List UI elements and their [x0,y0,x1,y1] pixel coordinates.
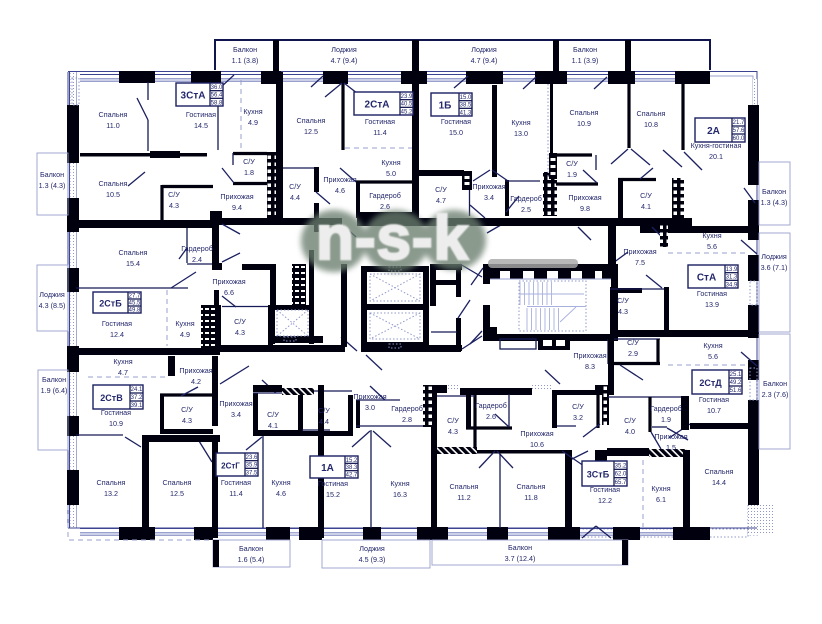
svg-text:4.7 (9.4): 4.7 (9.4) [331,56,358,65]
svg-text:С/У: С/У [617,296,629,305]
svg-text:5.6: 5.6 [708,352,718,361]
svg-text:7.5: 7.5 [635,258,645,267]
svg-text:Лоджия: Лоджия [471,45,497,54]
svg-text:n-s-k: n-s-k [316,204,469,273]
svg-text:1.3 (4.3): 1.3 (4.3) [39,181,66,190]
svg-text:2СтБ: 2СтБ [99,299,122,309]
svg-text:Кухня: Кухня [271,478,290,487]
svg-text:Спальня: Спальня [517,482,546,491]
svg-text:Гостиная: Гостиная [221,478,251,487]
svg-text:5.0: 5.0 [386,169,396,178]
svg-text:49.2: 49.2 [730,380,742,386]
svg-text:15.4: 15.4 [126,259,140,268]
svg-text:10.7: 10.7 [707,406,721,415]
svg-text:4.4: 4.4 [290,193,300,202]
svg-text:1.9: 1.9 [567,170,577,179]
svg-text:27.7: 27.7 [129,294,141,300]
svg-text:2.4: 2.4 [192,255,202,264]
svg-text:Гостиная: Гостиная [365,117,395,126]
svg-text:Гостиная: Гостиная [441,117,471,126]
svg-text:Прихожая: Прихожая [179,366,212,375]
svg-text:Прихожая: Прихожая [654,432,687,441]
svg-text:Спальня: Спальня [97,478,126,487]
svg-text:2СтВ: 2СтВ [100,393,123,403]
svg-text:2А: 2А [707,126,720,137]
svg-text:Спальня: Спальня [450,482,479,491]
svg-text:38.3: 38.3 [346,465,358,471]
svg-text:3.0: 3.0 [365,403,375,412]
svg-text:3.4: 3.4 [484,193,494,202]
svg-text:Кухня: Кухня [511,118,530,127]
svg-text:Гостиная: Гостиная [699,395,729,404]
svg-text:62.0: 62.0 [615,472,627,478]
svg-text:31.3: 31.3 [726,275,738,281]
svg-text:4.3: 4.3 [169,201,179,210]
svg-text:Прихожая: Прихожая [472,182,505,191]
svg-text:11.8: 11.8 [524,493,537,502]
svg-text:13.9: 13.9 [705,300,719,309]
svg-text:3.2: 3.2 [573,413,583,422]
svg-text:2СтГ: 2СтГ [221,462,240,471]
svg-text:Лоджия: Лоджия [39,290,65,299]
svg-text:Прихожая: Прихожая [220,192,253,201]
svg-text:Гостиная: Гостиная [102,319,132,328]
svg-text:45.5: 45.5 [129,301,141,307]
svg-text:Кухня: Кухня [113,357,132,366]
svg-text:Прихожая: Прихожая [573,351,606,360]
svg-text:2СтД: 2СтД [699,378,722,388]
svg-text:4.0: 4.0 [625,427,635,436]
svg-text:2.8: 2.8 [402,415,412,424]
svg-text:6.6: 6.6 [224,288,234,297]
svg-text:Прихожая: Прихожая [568,193,601,202]
svg-text:1.1 (3.9): 1.1 (3.9) [572,56,599,65]
svg-text:21.7: 21.7 [733,120,745,126]
svg-text:15.0: 15.0 [449,128,463,137]
svg-text:10.5: 10.5 [106,190,120,199]
svg-text:39.1: 39.1 [131,403,143,409]
svg-text:34.9: 34.9 [726,282,738,288]
svg-text:11.2: 11.2 [457,493,470,502]
svg-text:Кухня: Кухня [702,231,721,240]
svg-text:15.0: 15.0 [460,95,472,101]
svg-text:4.3: 4.3 [182,416,192,425]
svg-text:С/У: С/У [168,190,180,199]
svg-text:4.6: 4.6 [335,186,345,195]
svg-text:45.2: 45.2 [401,109,413,115]
svg-text:1.5: 1.5 [666,443,676,452]
svg-text:23.9: 23.9 [401,94,413,100]
svg-text:С/У: С/У [243,157,255,166]
svg-text:4.6: 4.6 [276,489,286,498]
svg-text:16.3: 16.3 [393,490,407,499]
svg-text:4.3: 4.3 [618,307,628,316]
svg-text:Балкон: Балкон [42,375,66,384]
svg-text:3.7 (12.4): 3.7 (12.4) [505,554,536,563]
svg-text:С/У: С/У [640,191,652,200]
svg-text:12.4: 12.4 [110,330,124,339]
svg-text:4.9: 4.9 [248,118,258,127]
svg-text:Лоджия: Лоджия [761,252,787,261]
svg-text:Гостиная: Гостиная [186,110,216,119]
svg-text:4.3: 4.3 [235,328,245,337]
svg-text:24.1: 24.1 [131,387,143,393]
svg-text:С/У: С/У [566,159,578,168]
svg-text:1.9: 1.9 [661,415,671,424]
svg-text:56.4: 56.4 [211,93,223,99]
svg-text:38.5: 38.5 [460,103,472,109]
svg-text:Спальня: Спальня [99,110,128,119]
svg-text:Балкон: Балкон [573,45,597,54]
svg-text:Балкон: Балкон [233,45,257,54]
svg-text:10.6: 10.6 [530,440,544,449]
svg-text:4.5 (9.3): 4.5 (9.3) [359,555,386,564]
svg-text:40.5: 40.5 [401,102,413,108]
svg-text:1.1 (3.8): 1.1 (3.8) [232,56,259,65]
svg-text:3СтА: 3СтА [181,91,206,102]
svg-text:12.2: 12.2 [598,496,612,505]
svg-text:Кухня: Кухня [390,479,409,488]
svg-text:С/У: С/У [627,338,639,347]
svg-text:Лоджия: Лоджия [359,544,385,553]
svg-text:Балкон: Балкон [762,187,786,196]
svg-text:Гардероб: Гардероб [510,194,542,203]
svg-text:11.4: 11.4 [373,128,386,137]
svg-text:Кухня: Кухня [175,319,194,328]
svg-text:5.6: 5.6 [707,242,717,251]
svg-text:37.5: 37.5 [246,470,258,476]
svg-text:1А: 1А [321,463,334,474]
svg-text:11.0: 11.0 [106,121,119,130]
svg-text:С/У: С/У [267,410,279,419]
svg-text:35.2: 35.2 [615,463,627,469]
svg-text:Спальня: Спальня [99,179,128,188]
svg-text:10.9: 10.9 [109,419,123,428]
svg-text:6.1: 6.1 [656,495,666,504]
svg-text:12.5: 12.5 [304,127,318,136]
svg-text:13.2: 13.2 [104,489,118,498]
svg-text:Кухня: Кухня [703,341,722,350]
svg-text:4.9: 4.9 [180,330,190,339]
svg-text:10.9: 10.9 [577,119,591,128]
svg-text:С/У: С/У [572,402,584,411]
svg-text:С/У: С/У [181,405,193,414]
svg-text:Лоджия: Лоджия [331,45,357,54]
svg-text:Гардероб: Гардероб [369,191,401,200]
svg-text:Гостиная: Гостиная [697,289,727,298]
svg-text:2.9: 2.9 [628,349,638,358]
svg-text:Кухня: Кухня [243,107,262,116]
svg-text:1.9 (6.4): 1.9 (6.4) [41,386,68,395]
svg-text:Гардероб: Гардероб [650,404,682,413]
svg-text:Балкон: Балкон [508,543,532,552]
svg-text:1.8: 1.8 [244,168,254,177]
svg-text:Прихожая: Прихожая [623,247,656,256]
svg-text:41.3: 41.3 [460,110,472,116]
svg-text:С/У: С/У [234,317,246,326]
svg-text:Спальня: Спальня [637,109,666,118]
svg-text:57.6: 57.6 [733,128,745,134]
svg-text:Прихожая: Прихожая [219,399,252,408]
svg-text:Прихожая: Прихожая [353,392,386,401]
svg-text:4.1: 4.1 [641,202,651,211]
svg-text:4.1: 4.1 [268,421,278,430]
svg-text:Спальня: Спальня [297,116,326,125]
svg-text:Прихожая: Прихожая [520,429,553,438]
svg-text:СтА: СтА [697,273,716,284]
svg-text:11.4: 11.4 [229,489,242,498]
svg-text:4.3: 4.3 [448,427,458,436]
svg-text:2СтА: 2СтА [365,100,390,111]
svg-text:4.7 (9.4): 4.7 (9.4) [471,56,498,65]
svg-text:2.6: 2.6 [486,412,496,421]
svg-text:С/У: С/У [447,416,459,425]
svg-text:42.7: 42.7 [346,473,358,479]
svg-text:35.9: 35.9 [246,463,258,469]
svg-text:1Б: 1Б [439,101,452,112]
svg-text:4.7: 4.7 [118,368,128,377]
svg-text:3.6 (7.1): 3.6 (7.1) [761,263,788,272]
svg-text:9.4: 9.4 [232,203,242,212]
svg-text:Кухня: Кухня [651,484,670,493]
svg-text:1.3 (4.3): 1.3 (4.3) [761,198,788,207]
svg-text:36.0: 36.0 [211,85,223,91]
svg-text:25.1: 25.1 [730,372,742,378]
svg-text:Гостиная: Гостиная [318,479,348,488]
svg-text:4.2: 4.2 [191,377,201,386]
svg-text:Балкон: Балкон [40,170,64,179]
svg-text:Кухня: Кухня [381,158,400,167]
svg-text:15.2: 15.2 [346,458,358,464]
svg-text:1.6 (5.4): 1.6 (5.4) [238,555,265,564]
svg-text:3.4: 3.4 [231,410,241,419]
svg-text:Балкон: Балкон [239,544,263,553]
svg-text:Прихожая: Прихожая [212,277,245,286]
svg-text:13.9: 13.9 [726,267,738,273]
svg-text:Гардероб: Гардероб [475,401,507,410]
svg-text:Гостиная: Гостиная [101,408,131,417]
svg-text:Спальня: Спальня [163,478,192,487]
svg-text:8.3: 8.3 [585,362,595,371]
svg-text:49.8: 49.8 [129,308,141,314]
svg-text:2.5: 2.5 [521,205,531,214]
svg-text:23.6: 23.6 [246,455,258,461]
svg-text:Спальня: Спальня [570,108,599,117]
svg-text:12.5: 12.5 [170,489,184,498]
svg-text:Балкон: Балкон [763,379,787,388]
svg-text:Гостиная: Гостиная [590,485,620,494]
svg-text:С/У: С/У [435,185,447,194]
svg-text:Гардероб: Гардероб [181,244,213,253]
svg-text:10.8: 10.8 [644,120,658,129]
svg-text:4.3 (8.5): 4.3 (8.5) [39,301,66,310]
svg-text:2.3 (7.6): 2.3 (7.6) [762,390,789,399]
svg-text:С/У: С/У [624,416,636,425]
svg-text:3СтБ: 3СтБ [587,470,610,480]
svg-text:37.2: 37.2 [131,395,143,401]
svg-text:С/У: С/У [318,406,330,415]
svg-text:20.1: 20.1 [709,152,723,161]
svg-text:Кухня-гостиная: Кухня-гостиная [691,141,742,150]
svg-text:Спальня: Спальня [119,248,148,257]
svg-text:15.2: 15.2 [326,490,340,499]
svg-text:4.4: 4.4 [319,417,329,426]
svg-text:14.4: 14.4 [712,478,726,487]
svg-text:Прихожая: Прихожая [323,175,356,184]
svg-text:51.6: 51.6 [730,388,742,394]
svg-text:Спальня: Спальня [705,467,734,476]
svg-text:Гардероб: Гардероб [391,404,423,413]
svg-text:14.5: 14.5 [194,121,208,130]
svg-text:58.8: 58.8 [211,100,223,106]
svg-text:13.0: 13.0 [514,129,528,138]
svg-text:9.8: 9.8 [580,204,590,213]
svg-text:С/У: С/У [289,182,301,191]
